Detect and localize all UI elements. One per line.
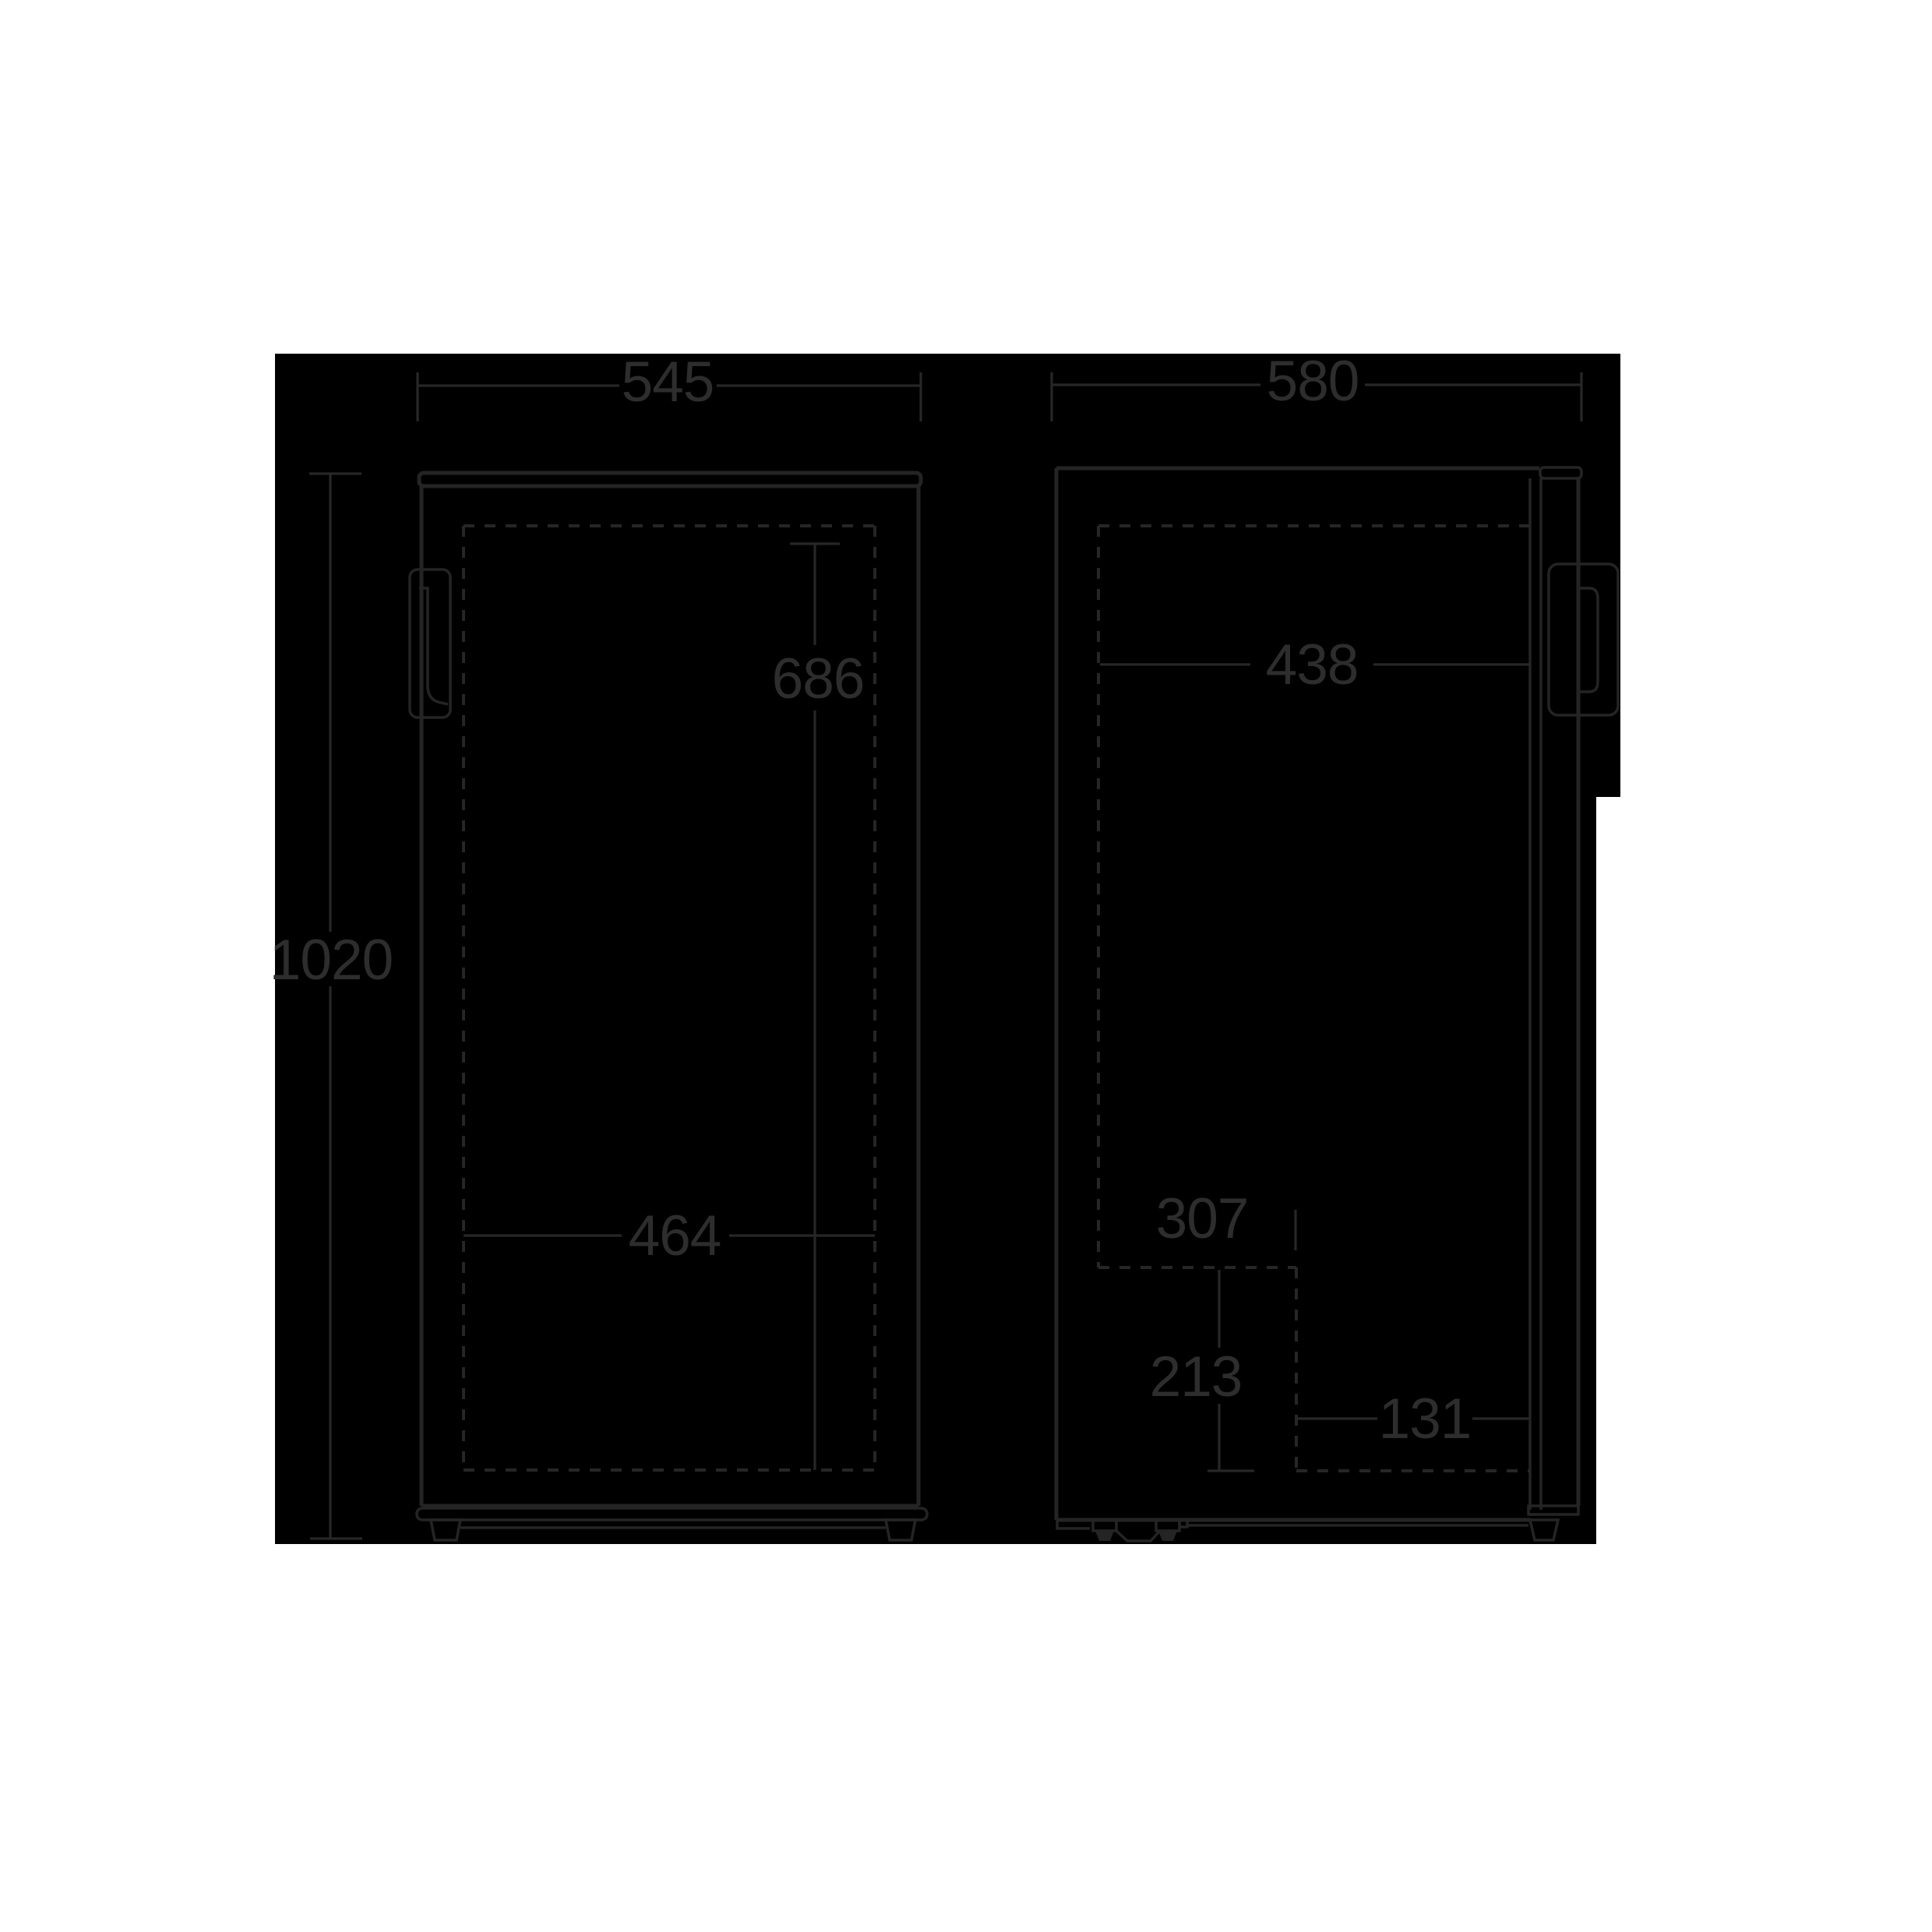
side-depth-value: 580 [1267,350,1359,413]
diagram-background [275,354,1620,1544]
dimension-diagram-page: 545 1020 [0,0,1932,1932]
recess-front-gap-value: 131 [1379,1387,1472,1451]
background-main [275,354,1596,1544]
recess-depth-value: 307 [1156,1187,1249,1250]
dimension-diagram: 545 1020 [0,0,1932,1932]
background-handle-tab [1593,354,1620,797]
side-interior-depth-value: 438 [1266,633,1359,696]
front-interior-height-value: 686 [772,647,865,710]
front-height-value: 1020 [270,929,393,992]
front-interior-width-value: 464 [629,1204,721,1267]
recess-height-value: 213 [1150,1345,1243,1408]
front-width-value: 545 [622,351,714,414]
